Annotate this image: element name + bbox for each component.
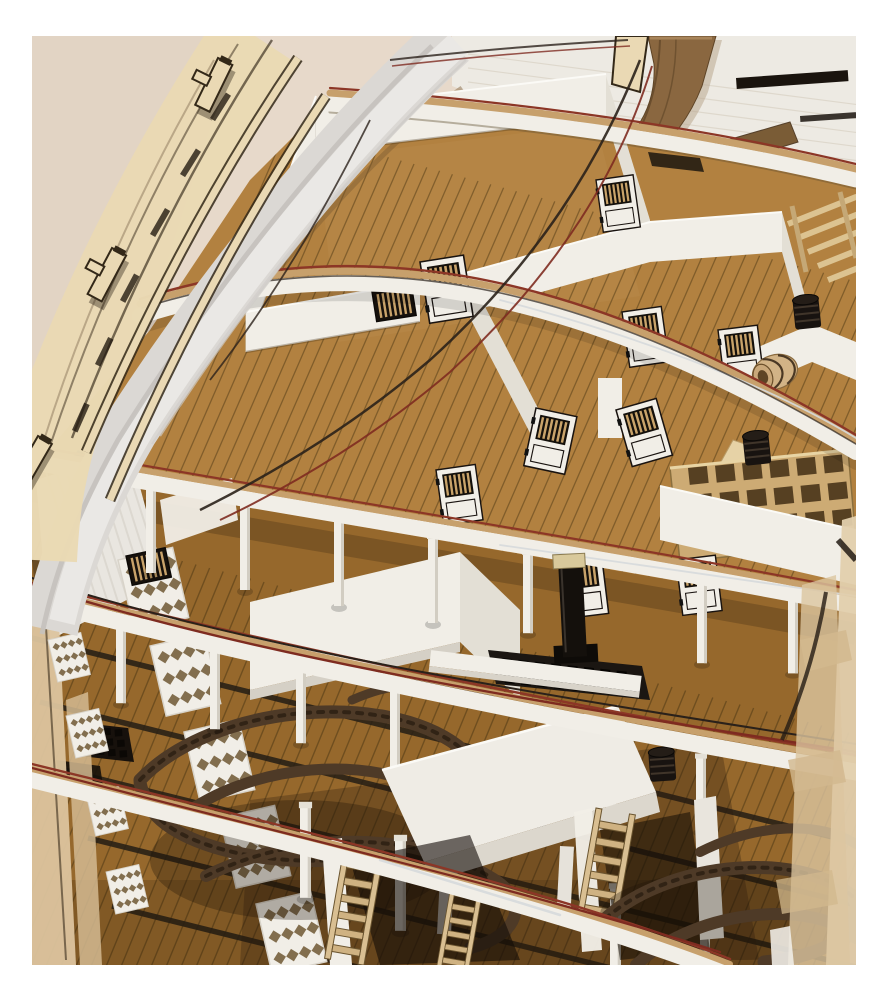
- door-post: [598, 378, 622, 438]
- ribbed-keg: [648, 746, 676, 782]
- photo-area: [0, 36, 888, 1000]
- photo-canvas: [0, 0, 888, 1000]
- ribbed-keg: [742, 429, 771, 466]
- ribbed-keg: [792, 293, 821, 330]
- model-ship-photo: [0, 0, 888, 1000]
